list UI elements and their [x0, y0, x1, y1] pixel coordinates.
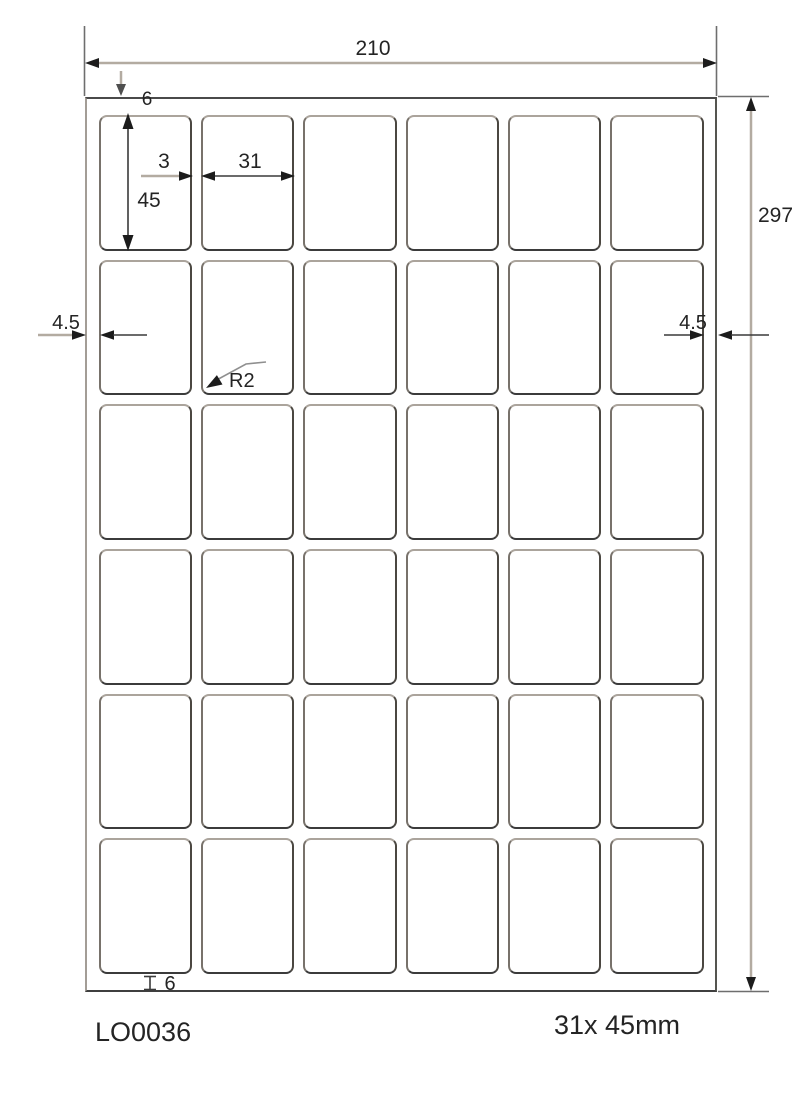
- label-cell: [99, 115, 192, 251]
- label-cell: [508, 115, 601, 251]
- label-cell: [406, 115, 499, 251]
- dim-sheet-width: 210: [85, 37, 717, 68]
- label-cell: [99, 694, 192, 830]
- label-cell: [406, 694, 499, 830]
- dim-sheet-height-value: 297: [758, 204, 793, 227]
- label-cell: [303, 115, 396, 251]
- label-cell: [610, 694, 703, 830]
- label-cell: [99, 260, 192, 396]
- label-cell: [508, 404, 601, 540]
- label-cell: [303, 404, 396, 540]
- dim-sheet-width-value: 210: [355, 37, 390, 60]
- label-cell: [303, 549, 396, 685]
- arrow-right-icon: [703, 58, 717, 68]
- label-cell: [201, 404, 294, 540]
- label-cell: [303, 694, 396, 830]
- label-cell: [303, 260, 396, 396]
- label-cell: [610, 260, 703, 396]
- label-grid: [87, 99, 715, 990]
- label-cell: [99, 838, 192, 974]
- arrow-down-icon: [116, 84, 126, 96]
- label-cell: [610, 549, 703, 685]
- label-cell: [406, 404, 499, 540]
- label-cell: [201, 115, 294, 251]
- arrow-left-icon: [718, 330, 732, 339]
- dim-margin-left-value: 4.5: [52, 312, 80, 334]
- label-cell: [201, 260, 294, 396]
- label-cell: [201, 549, 294, 685]
- label-cell: [201, 838, 294, 974]
- label-sheet-diagram: 210 297 6 45 3: [0, 0, 812, 1093]
- label-cell: [406, 260, 499, 396]
- label-cell: [610, 404, 703, 540]
- label-cell: [201, 694, 294, 830]
- label-cell: [99, 549, 192, 685]
- label-cell: [406, 549, 499, 685]
- product-code: LO0036: [95, 1017, 191, 1047]
- a4-sheet: [85, 97, 717, 992]
- dim-sheet-height: 297: [746, 97, 793, 991]
- arrow-left-icon: [85, 58, 99, 68]
- label-cell: [508, 549, 601, 685]
- label-cell: [99, 404, 192, 540]
- label-cell: [508, 838, 601, 974]
- arrow-right-icon: [72, 330, 86, 339]
- label-cell: [610, 115, 703, 251]
- label-cell: [508, 694, 601, 830]
- arrow-up-icon: [746, 97, 756, 111]
- label-cell: [508, 260, 601, 396]
- label-cell: [406, 838, 499, 974]
- label-cell: [610, 838, 703, 974]
- arrow-down-icon: [746, 977, 756, 991]
- label-cell: [303, 838, 396, 974]
- label-size-text: 31x 45mm: [554, 1010, 680, 1040]
